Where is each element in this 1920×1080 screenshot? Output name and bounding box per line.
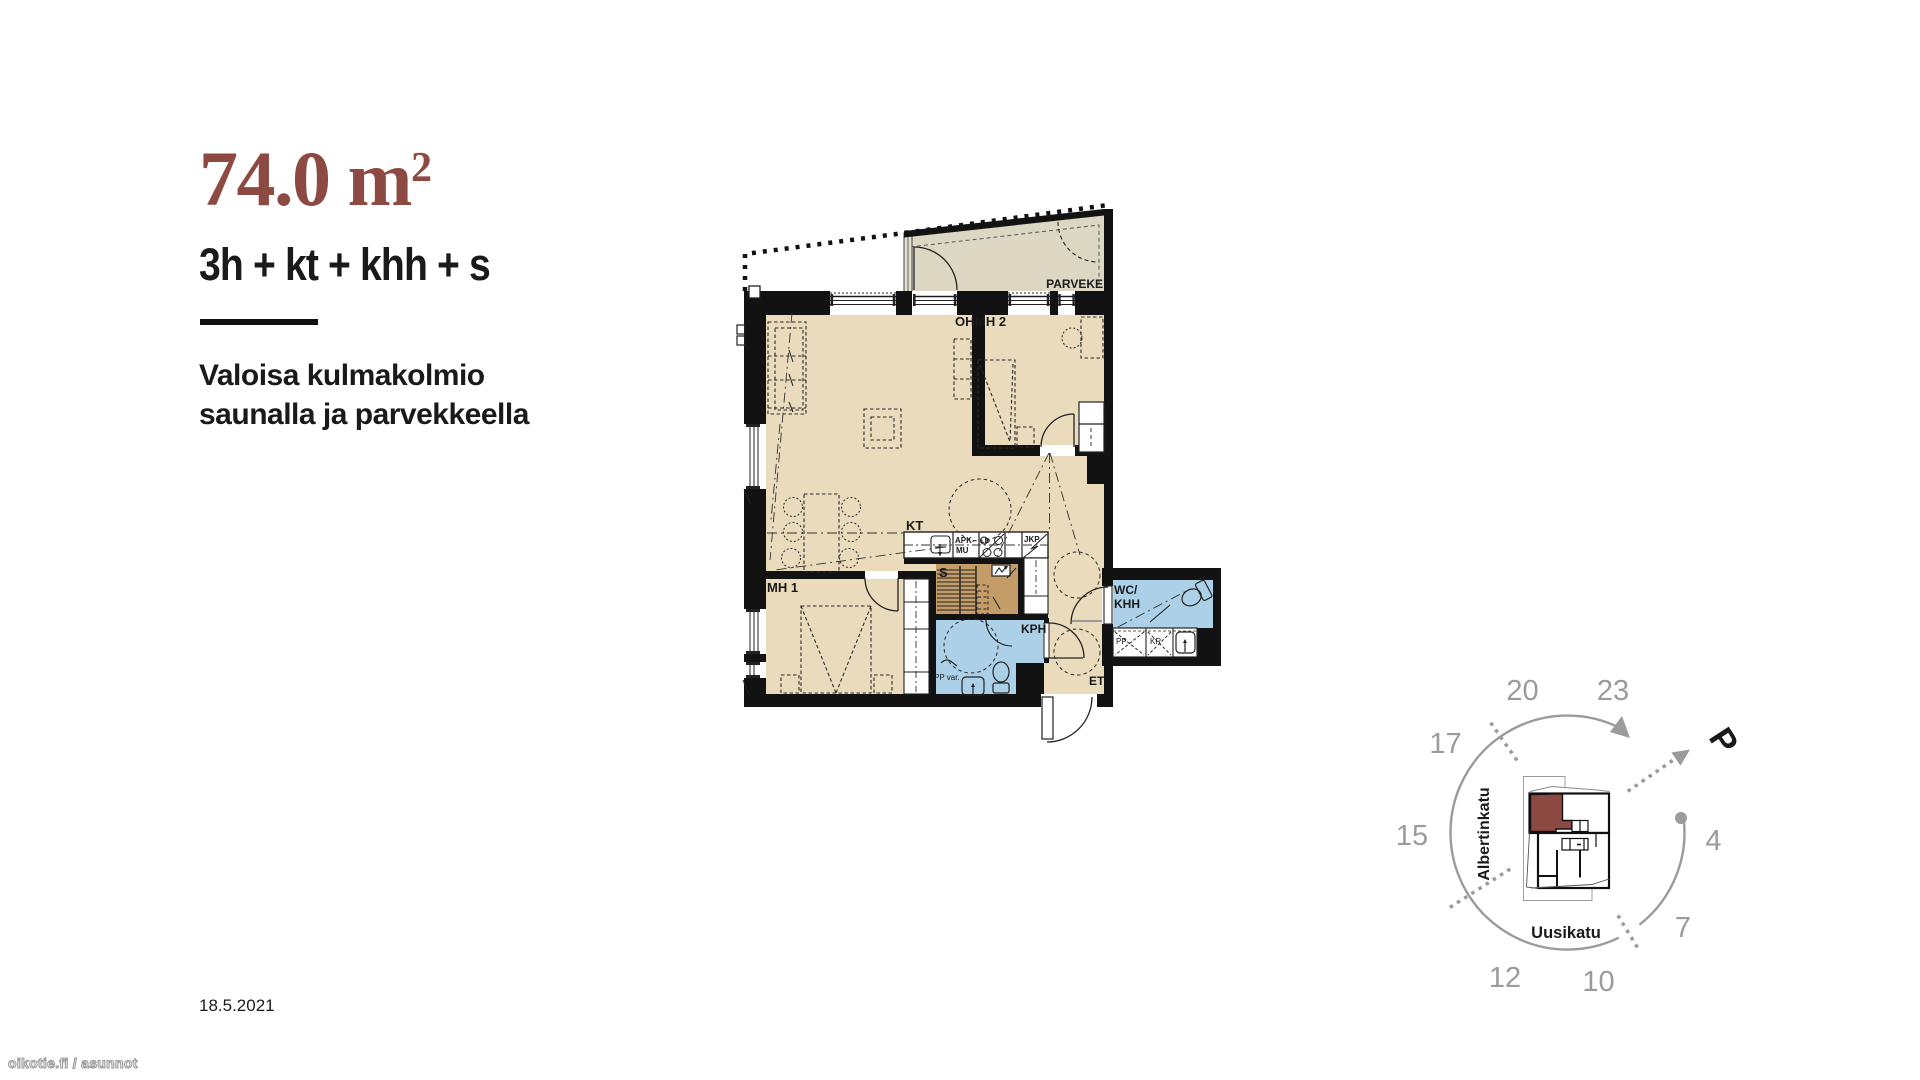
svg-text:20: 20 (1506, 675, 1538, 707)
svg-text:KR: KR (1150, 637, 1161, 646)
svg-text:KHH: KHH (1114, 597, 1140, 611)
svg-text:MU: MU (956, 546, 969, 555)
svg-text:KT: KT (906, 518, 923, 533)
svg-text:WC/: WC/ (1114, 583, 1138, 597)
svg-text:PARVEKE: PARVEKE (1046, 277, 1103, 291)
svg-text:23: 23 (1597, 675, 1629, 707)
svg-text:Albertinkatu: Albertinkatu (1476, 787, 1493, 880)
svg-text:15: 15 (1396, 820, 1428, 852)
svg-text:OH: OH (955, 314, 975, 329)
svg-text:4: 4 (1705, 825, 1721, 857)
svg-text:JKP: JKP (1024, 535, 1040, 544)
svg-text:PP: PP (1116, 637, 1127, 646)
svg-text:MH 2: MH 2 (975, 314, 1006, 329)
svg-text:7: 7 (1675, 912, 1691, 944)
svg-text:ET: ET (1089, 674, 1105, 688)
svg-text:APK-: APK- (955, 536, 975, 545)
svg-text:Uusikatu: Uusikatu (1531, 924, 1601, 942)
svg-text:10: 10 (1582, 966, 1614, 998)
svg-text:KPH: KPH (1021, 622, 1046, 636)
svg-text:P: P (1701, 721, 1745, 761)
svg-text:MH 1: MH 1 (767, 580, 798, 595)
svg-text:12: 12 (1489, 962, 1521, 994)
svg-text:PP var.: PP var. (934, 673, 960, 682)
svg-text:17: 17 (1429, 728, 1461, 760)
svg-text:S: S (939, 565, 948, 580)
